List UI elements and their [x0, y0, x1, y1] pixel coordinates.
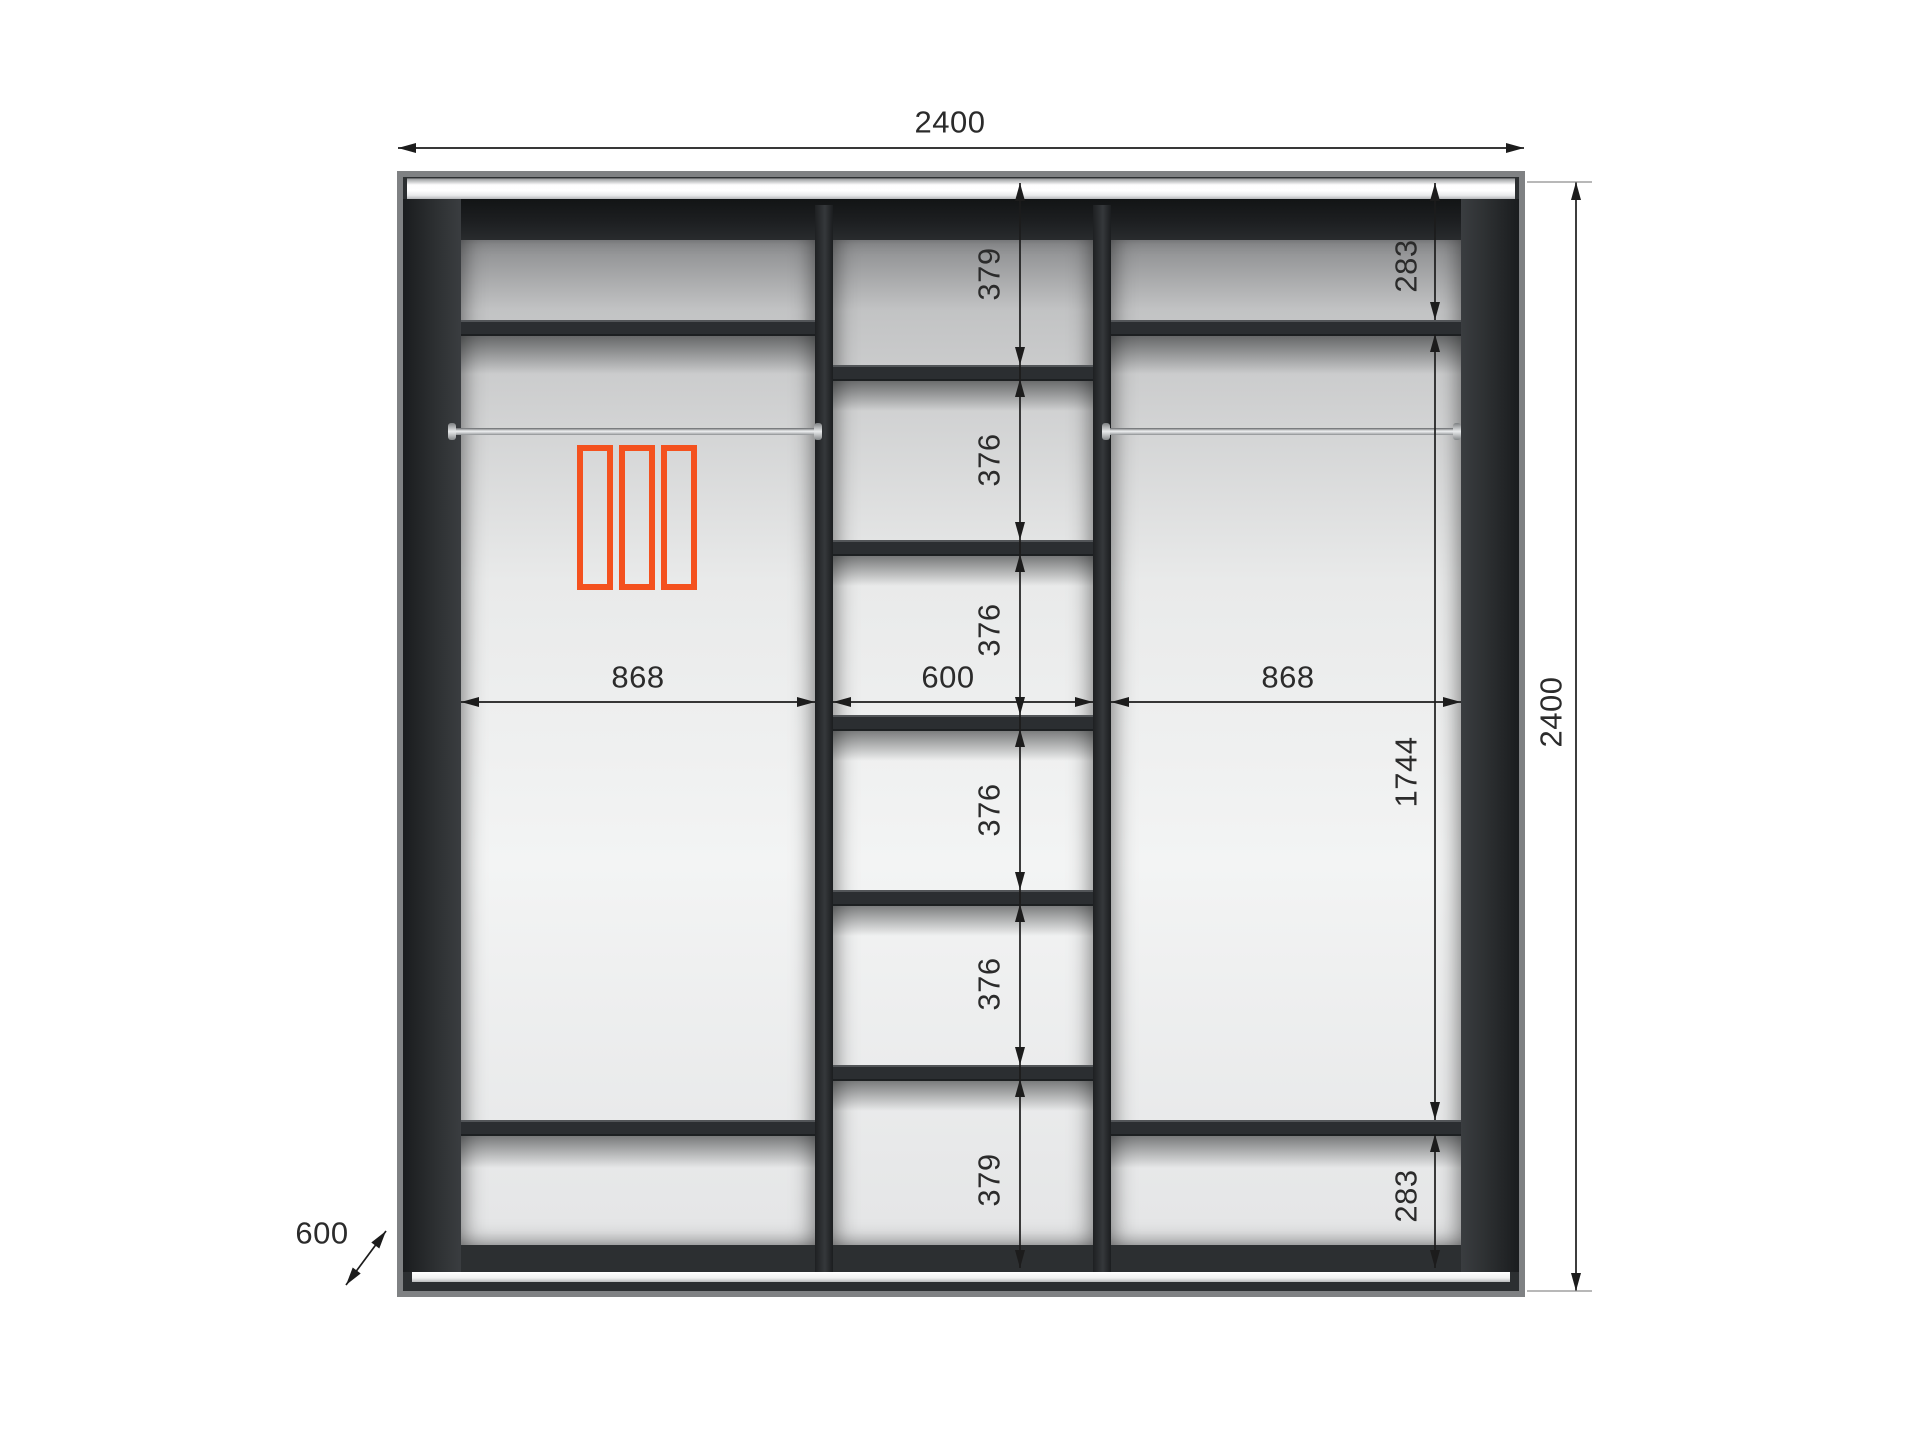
- dim-middle-gap-6-label: 379: [974, 1153, 1005, 1206]
- wardrobe-frame: [397, 171, 1525, 1297]
- dim-middle-gap-2-label: 376: [974, 433, 1005, 486]
- middle-shelf-2-shadow: [833, 554, 1093, 586]
- right-top-shelf-shadow: [1111, 334, 1461, 374]
- left-side-wall: [403, 199, 461, 1272]
- sliding-doors-icon: [577, 445, 697, 590]
- dim-overall-height-label: 2400: [1536, 677, 1567, 748]
- door-panel-icon: [619, 445, 655, 590]
- right-rod-end-cap: [1453, 423, 1461, 440]
- sliding-door-top-rail: [407, 178, 1515, 200]
- middle-shelf-1-shadow: [833, 379, 1093, 411]
- sliding-door-bottom-rail: [412, 1272, 1510, 1282]
- wardrobe-dimension-diagram: 2400 2400 600 868 600 868 379 376 376 37…: [0, 0, 1920, 1440]
- left-rod-end-cap: [448, 423, 456, 440]
- left-hanging-rod: [450, 428, 822, 435]
- dim-middle-gap-5-label: 376: [974, 957, 1005, 1010]
- right-partition: [1093, 205, 1111, 1272]
- dim-right-hanging-gap-label: 1744: [1391, 737, 1422, 808]
- dim-right-section-width-label: 868: [1261, 662, 1314, 693]
- dim-middle-section-width-label: 600: [921, 662, 974, 693]
- dim-middle-gap-1-label: 379: [974, 247, 1005, 300]
- middle-shelf-3-shadow: [833, 729, 1093, 761]
- middle-shelf-4-shadow: [833, 904, 1093, 936]
- left-partition: [815, 205, 833, 1272]
- left-top-shelf-shadow: [461, 334, 815, 374]
- dim-middle-gap-3-label: 376: [974, 603, 1005, 656]
- right-side-wall: [1461, 199, 1519, 1272]
- interior-ceiling: [403, 199, 1519, 241]
- dim-left-section-width-label: 868: [611, 662, 664, 693]
- middle-shelf-5-shadow: [833, 1079, 1093, 1111]
- door-panel-icon: [577, 445, 613, 590]
- left-rod-end-cap: [814, 423, 822, 440]
- dim-middle-gap-4-label: 376: [974, 783, 1005, 836]
- dim-depth-label: 600: [295, 1218, 348, 1249]
- dim-right-bottom-gap-label: 283: [1391, 1169, 1422, 1222]
- right-rod-end-cap: [1102, 423, 1110, 440]
- left-section-back-panel: [461, 240, 815, 1245]
- dim-overall-width-label: 2400: [915, 107, 986, 138]
- door-panel-icon: [661, 445, 697, 590]
- dim-right-top-gap-label: 283: [1391, 239, 1422, 292]
- right-bottom-shelf-shadow: [1111, 1134, 1461, 1168]
- left-bottom-shelf-shadow: [461, 1134, 815, 1168]
- right-hanging-rod: [1104, 428, 1461, 435]
